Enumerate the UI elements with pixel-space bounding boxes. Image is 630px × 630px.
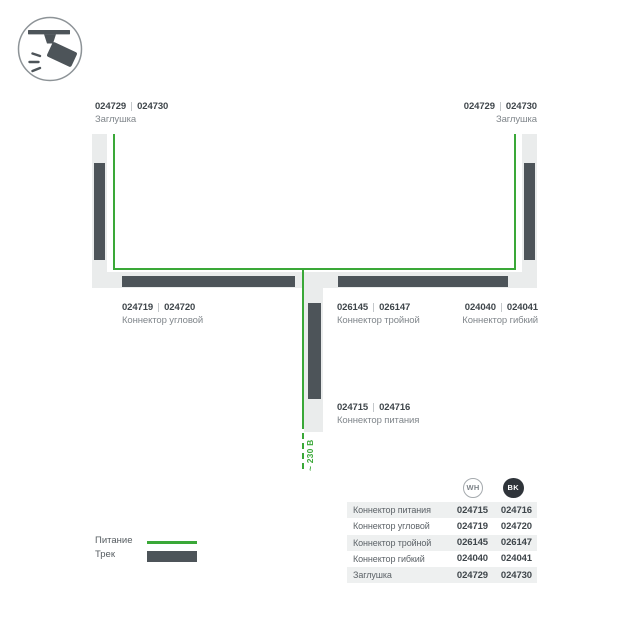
part-numbers: 024729 024730 bbox=[95, 101, 168, 112]
legend-power-swatch bbox=[147, 541, 197, 544]
part-number-wh: 024715 bbox=[337, 402, 368, 413]
legend-track-swatch bbox=[147, 551, 197, 562]
part-numbers: 026145 026147 bbox=[337, 302, 420, 313]
part-number-wh: 024729 bbox=[95, 101, 126, 112]
catalog-scheme-page: ~ 230 В 024729 024730 Заглушка 024729 02… bbox=[0, 0, 630, 630]
part-numbers: 024715 024716 bbox=[337, 402, 419, 413]
part-number-wh: 024729 bbox=[464, 101, 495, 112]
part-number-wh: 026145 bbox=[337, 302, 368, 313]
power-line-feed-dashed bbox=[302, 433, 304, 469]
power-line-right bbox=[514, 134, 516, 270]
divider bbox=[500, 102, 501, 111]
parts-table: WH BK Коннектор питания 024715 024716 Ко… bbox=[347, 478, 537, 583]
divider bbox=[158, 303, 159, 312]
part-numbers: 024729 024730 bbox=[464, 101, 537, 112]
row-wh-number: 024040 bbox=[441, 553, 488, 564]
row-bk-number: 024720 bbox=[488, 521, 532, 532]
row-part-name: Коннектор тройной bbox=[347, 538, 441, 548]
part-name: Коннектор гибкий bbox=[462, 315, 538, 326]
table-row: Коннектор гибкий 024040 024041 bbox=[347, 551, 537, 567]
divider bbox=[373, 403, 374, 412]
table-row: Заглушка 024729 024730 bbox=[347, 567, 537, 583]
part-label-tee-connector: 026145 026147 Коннектор тройной bbox=[337, 302, 420, 326]
color-badge-black: BK bbox=[503, 478, 524, 498]
part-label-corner-connector: 024719 024720 Коннектор угловой bbox=[122, 302, 203, 326]
table-row: Коннектор угловой 024719 024720 bbox=[347, 518, 537, 534]
row-bk-number: 026147 bbox=[488, 537, 532, 548]
row-part-name: Коннектор гибкий bbox=[347, 554, 441, 564]
part-number-wh: 024719 bbox=[122, 302, 153, 313]
row-part-name: Заглушка bbox=[347, 570, 441, 580]
part-label-flex-connector: 024040 024041 Коннектор гибкий bbox=[462, 302, 538, 326]
part-number-wh: 024040 bbox=[465, 302, 496, 313]
part-name: Коннектор тройной bbox=[337, 315, 420, 326]
power-line-horizontal bbox=[113, 268, 516, 270]
part-name: Коннектор угловой bbox=[122, 315, 203, 326]
part-name: Коннектор питания bbox=[337, 415, 419, 426]
track-bar-left bbox=[94, 163, 105, 260]
voltage-label: ~ 230 В bbox=[305, 429, 317, 471]
part-number-bk: 026147 bbox=[379, 302, 410, 313]
legend-track-label: Трек bbox=[95, 549, 115, 560]
part-label-cap-right: 024729 024730 Заглушка bbox=[464, 101, 537, 125]
row-wh-number: 024719 bbox=[441, 521, 488, 532]
part-numbers: 024040 024041 bbox=[462, 302, 538, 313]
divider bbox=[131, 102, 132, 111]
divider bbox=[373, 303, 374, 312]
part-number-bk: 024716 bbox=[379, 402, 410, 413]
power-line-left bbox=[113, 134, 115, 270]
track-bar-horizontal-right bbox=[338, 276, 508, 287]
part-numbers: 024719 024720 bbox=[122, 302, 203, 313]
track-bar-horizontal-left bbox=[122, 276, 295, 287]
part-number-bk: 024730 bbox=[506, 101, 537, 112]
track-spotlight-icon bbox=[16, 15, 84, 83]
row-wh-number: 024729 bbox=[441, 570, 488, 581]
part-number-bk: 024720 bbox=[164, 302, 195, 313]
part-name: Заглушка bbox=[464, 114, 537, 125]
row-part-name: Коннектор угловой bbox=[347, 521, 441, 531]
part-label-cap-left: 024729 024730 Заглушка bbox=[95, 101, 168, 125]
row-wh-number: 026145 bbox=[441, 537, 488, 548]
color-badge-white: WH bbox=[463, 478, 483, 498]
power-line-middle bbox=[302, 270, 304, 429]
part-number-bk: 024041 bbox=[507, 302, 538, 313]
row-part-name: Коннектор питания bbox=[347, 505, 441, 515]
row-bk-number: 024730 bbox=[488, 570, 532, 581]
part-name: Заглушка bbox=[95, 114, 168, 125]
track-bar-middle bbox=[308, 303, 321, 399]
row-wh-number: 024715 bbox=[441, 505, 488, 516]
legend-power-label: Питание bbox=[95, 535, 133, 546]
row-bk-number: 024716 bbox=[488, 505, 532, 516]
track-bar-right bbox=[524, 163, 535, 260]
table-row: Коннектор питания 024715 024716 bbox=[347, 502, 537, 518]
divider bbox=[501, 303, 502, 312]
parts-table-rows: Коннектор питания 024715 024716 Коннекто… bbox=[347, 502, 537, 583]
part-label-power-connector: 024715 024716 Коннектор питания bbox=[337, 402, 419, 426]
table-row: Коннектор тройной 026145 026147 bbox=[347, 535, 537, 551]
part-number-bk: 024730 bbox=[137, 101, 168, 112]
row-bk-number: 024041 bbox=[488, 553, 532, 564]
